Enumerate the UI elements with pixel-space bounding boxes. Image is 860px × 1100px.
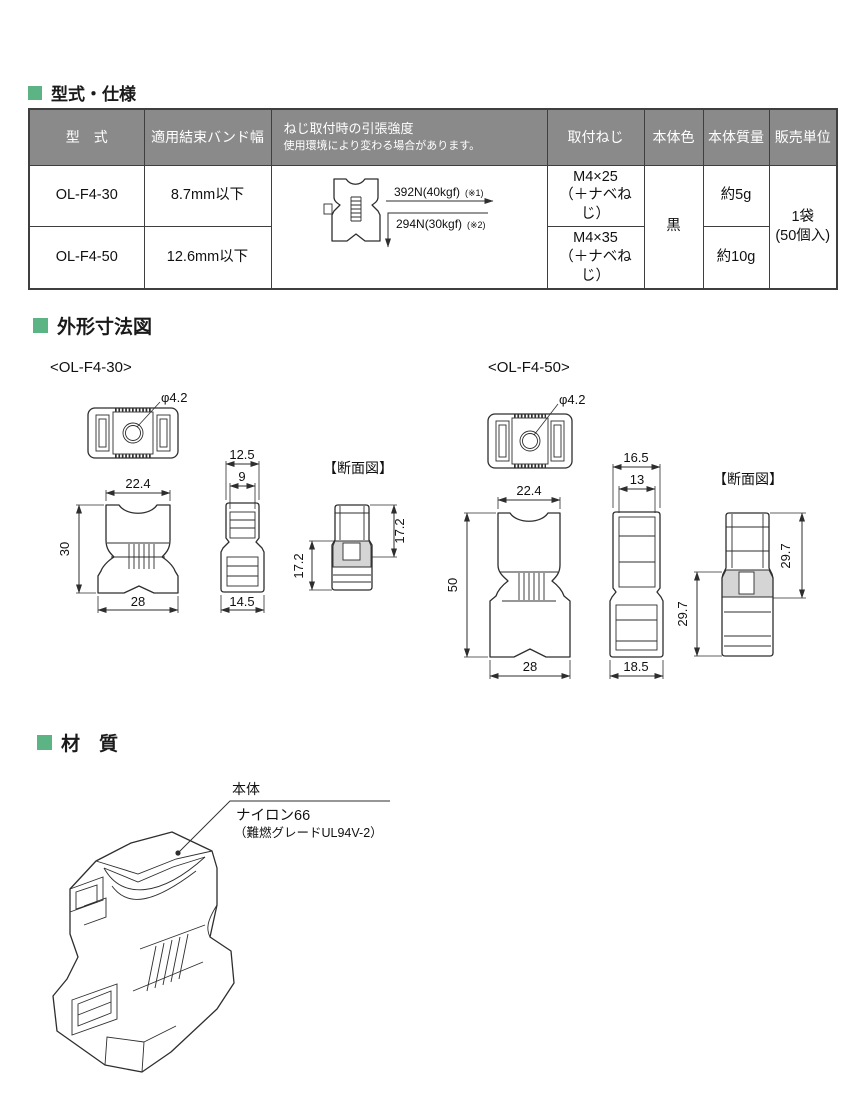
hole-dia-label: φ4.2 (559, 392, 586, 407)
model-label: <OL-F4-50> (488, 359, 570, 376)
col-header-band-width: 適用結束バンド幅 (144, 109, 271, 165)
green-square-icon (33, 318, 48, 333)
front-view-ol-f4-50: 22.4 50 28 (445, 483, 570, 679)
tensile-strength-diagram: 392N(40kgf) (※1) 294N(30kgf) (※2) (308, 171, 558, 263)
dim-bottom-width: 28 (131, 594, 145, 609)
cell-model-0: OL-F4-30 (29, 165, 144, 227)
pull-down-note: (※2) (467, 220, 486, 230)
dim-section-lower: 17.2 (291, 553, 306, 578)
side-view-ol-f4-50: 16.5 13 18.5 (610, 450, 663, 679)
section-heading-dimensions: 外形寸法図 (33, 312, 152, 339)
dim-height: 30 (57, 542, 72, 556)
pull-right-note: (※1) (465, 188, 484, 198)
screw-type: （＋ナベねじ） (550, 186, 642, 224)
green-square-icon (37, 735, 52, 750)
cell-band-width-1: 12.6mm以下 (144, 227, 271, 289)
tensile-header-line1: ねじ取付時の引張強度 (284, 120, 545, 139)
dim-side-bottom-width: 18.5 (623, 659, 648, 674)
cross-section-ol-f4-50: 【断面図】 29.7 29.7 (675, 471, 806, 656)
section-title: 材 質 (61, 729, 118, 756)
material-grade: （難燃グレードUL94V-2） (234, 822, 383, 841)
pull-down-label: 294N(30kgf) (396, 217, 462, 231)
tensile-header-line2: 使用環境により変わる場合があります。 (284, 139, 545, 154)
dim-section-upper: 17.2 (392, 518, 407, 543)
dim-bottom-width: 28 (523, 659, 537, 674)
table-header-row: 型 式 適用結束バンド幅 ねじ取付時の引張強度 使用環境により変わる場合がありま… (29, 109, 837, 165)
model-label: <OL-F4-30> (50, 359, 132, 376)
cross-section-title: 【断面図】 (323, 460, 393, 476)
cross-section-title: 【断面図】 (713, 471, 783, 487)
cell-sales-unit: 1袋 (50個入) (769, 165, 837, 289)
green-square-icon (28, 86, 42, 100)
dim-side-inner-width: 9 (238, 469, 245, 484)
material-drawing (0, 760, 860, 1100)
col-header-sales-unit: 販売単位 (769, 109, 837, 165)
cell-tensile-diagram: 392N(40kgf) (※1) 294N(30kgf) (※2) (271, 165, 547, 289)
dim-section-upper: 29.7 (778, 543, 793, 568)
section-heading-material: 材 質 (37, 729, 118, 756)
section-title: 型式・仕様 (51, 80, 136, 105)
hole-dia-label: φ4.2 (161, 390, 188, 405)
cell-mass-0: 約5g (703, 165, 769, 227)
band-ribs (519, 573, 544, 600)
dim-side-bottom-width: 14.5 (229, 594, 254, 609)
dim-section-lower: 29.7 (675, 601, 690, 626)
cell-body-color: 黒 (644, 165, 703, 289)
col-header-body-mass: 本体質量 (703, 109, 769, 165)
col-header-model: 型 式 (29, 109, 144, 165)
cell-band-width-0: 8.7mm以下 (144, 165, 271, 227)
drawing-group-ol-f4-50: <OL-F4-50> φ4.2 (445, 359, 806, 679)
dim-side-inner-width: 13 (630, 472, 644, 487)
cell-screw-0: M4×25 （＋ナベねじ） (547, 165, 644, 227)
side-view-ol-f4-30: 12.5 9 14.5 (221, 447, 264, 613)
sales-unit-line2: (50個入) (772, 227, 835, 246)
col-header-screw: 取付ねじ (547, 109, 644, 165)
sales-unit-line1: 1袋 (772, 208, 835, 227)
screw-size: M4×35 (550, 229, 642, 248)
screw-type: （＋ナベねじ） (550, 248, 642, 286)
col-header-body-color: 本体色 (644, 109, 703, 165)
cell-model-1: OL-F4-50 (29, 227, 144, 289)
dim-top-width: 22.4 (125, 476, 150, 491)
drawing-group-ol-f4-30: <OL-F4-30> φ4.2 (50, 359, 407, 613)
mount-hole (520, 431, 540, 451)
top-view-ol-f4-50: φ4.2 (488, 392, 586, 468)
clip-tab (324, 204, 332, 214)
pull-right-label: 392N(40kgf) (394, 185, 460, 199)
screw-size: M4×25 (550, 168, 642, 187)
cross-section-ol-f4-30: 【断面図】 17.2 17.2 (291, 460, 407, 590)
dim-side-top-width: 12.5 (229, 447, 254, 462)
cell-mass-1: 約10g (703, 227, 769, 289)
table-row: OL-F4-30 8.7mm以下 (29, 165, 837, 227)
serration (514, 416, 546, 466)
col-header-tensile: ねじ取付時の引張強度 使用環境により変わる場合があります。 (271, 109, 547, 165)
dim-height: 50 (445, 578, 460, 592)
material-part-label: 本体 (232, 779, 260, 799)
mount-hole (123, 423, 143, 443)
band-ribs (129, 544, 154, 569)
dim-top-width: 22.4 (516, 483, 541, 498)
front-view-ol-f4-30: 22.4 30 28 (57, 476, 178, 613)
dimension-drawings: <OL-F4-30> φ4.2 (0, 340, 860, 700)
clip-side-sketch (324, 179, 380, 241)
isometric-part-drawing (53, 832, 234, 1072)
section-heading-spec: 型式・仕様 (28, 80, 136, 105)
dim-side-top-width: 16.5 (623, 450, 648, 465)
top-view-ol-f4-30: φ4.2 (88, 390, 188, 458)
spring-coil (351, 197, 361, 221)
section-title: 外形寸法図 (57, 312, 152, 339)
cell-screw-1: M4×35 （＋ナベねじ） (547, 227, 644, 289)
serration (115, 410, 151, 456)
spec-table: 型 式 適用結束バンド幅 ねじ取付時の引張強度 使用環境により変わる場合がありま… (28, 108, 838, 290)
datasheet-page: 型式・仕様 型 式 適用結束バンド幅 ねじ取付時の引張強度 使用環境により変わる… (0, 0, 860, 1100)
